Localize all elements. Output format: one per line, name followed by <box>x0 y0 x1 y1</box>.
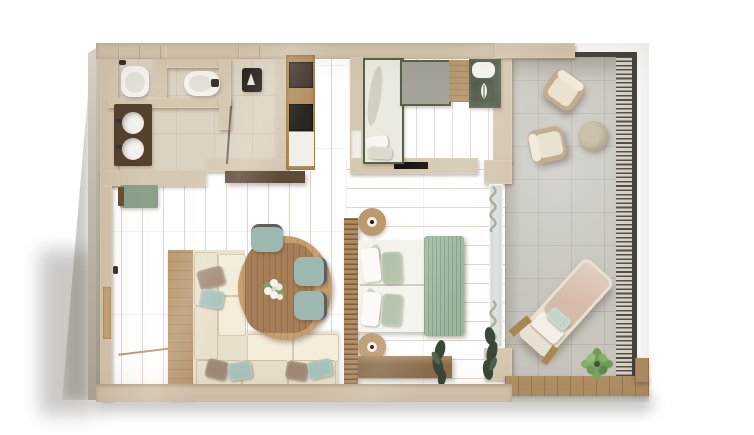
terrace-north-wall <box>495 43 575 58</box>
bed-pillow-sage-top <box>381 251 403 284</box>
headboard-slat-panel <box>344 218 358 390</box>
wardrobe-panel-white <box>289 132 314 166</box>
sofa-seat-cushion-4 <box>293 334 339 362</box>
throw-pillow-blue-1 <box>199 288 226 310</box>
sofa-wood-side-panel <box>168 250 193 397</box>
terrace-rail-top <box>573 52 637 57</box>
duvet-center-line <box>360 284 424 286</box>
terrace-deck-corner <box>635 358 649 382</box>
terrace-pouf <box>578 121 608 151</box>
bidet-basin <box>189 75 211 92</box>
bidet-tap <box>211 79 219 87</box>
dining-chair-right-1 <box>294 257 327 286</box>
bed-pillow-white-bottom <box>360 291 381 327</box>
entrance-door-leaf <box>103 287 111 339</box>
floor-plan-render <box>0 0 754 435</box>
bathroom-south-wall-right <box>206 158 288 172</box>
south-wall <box>96 384 512 402</box>
tv-console <box>225 171 305 183</box>
curtain-top <box>485 186 501 232</box>
terrace-potted-plant <box>580 347 614 381</box>
north-wall-niche-2 <box>238 46 275 59</box>
bed-pillow-white-top <box>360 247 381 283</box>
kids-room-pocket-door <box>351 130 362 160</box>
flower-centerpiece <box>258 273 290 305</box>
sink-basin-bottom <box>122 138 144 160</box>
dresser-floor-plant <box>428 338 452 388</box>
bathroom-south-wall-left <box>100 170 206 186</box>
nightstand-top-lamp-dot <box>370 220 374 224</box>
nightstand-bottom-lamp-dot <box>370 345 374 349</box>
kids-unit-tan-panel <box>449 60 469 102</box>
terrace-rail-right <box>632 52 637 378</box>
sink-basin-top <box>122 112 144 134</box>
wardrobe-panel-dark <box>289 62 313 88</box>
sink-tap-bottom <box>116 145 122 149</box>
sofa-back-cushion-2 <box>194 306 218 360</box>
dining-chair-right-2 <box>294 291 327 320</box>
throw-pillow-taupe-3 <box>285 360 310 382</box>
bed-pillow-sage-bottom <box>381 293 403 326</box>
kids-unit-gray-panel <box>400 60 451 106</box>
wardrobe-panel-black <box>289 104 313 131</box>
terrace-deck-border <box>505 376 649 396</box>
throw-pillow-blue-2 <box>227 360 253 381</box>
leaf-print-pillow <box>473 80 495 102</box>
north-wall-niche-1 <box>118 46 168 59</box>
corner-plant-indoor <box>479 326 501 382</box>
toilet-seat <box>125 72 145 93</box>
kids-daybed-pillow-2 <box>368 146 393 160</box>
entry-bench-legs <box>118 187 124 206</box>
dining-chair-top <box>251 224 283 252</box>
terrace-wall-post-top <box>484 160 512 184</box>
bed-sage-throw <box>424 236 464 336</box>
entrance-door-handle <box>113 266 118 274</box>
kids-corner-bed-duvet <box>472 62 495 78</box>
sink-tap-top <box>116 119 122 123</box>
entry-bench <box>120 185 158 208</box>
toilet-flush-button <box>119 60 126 65</box>
